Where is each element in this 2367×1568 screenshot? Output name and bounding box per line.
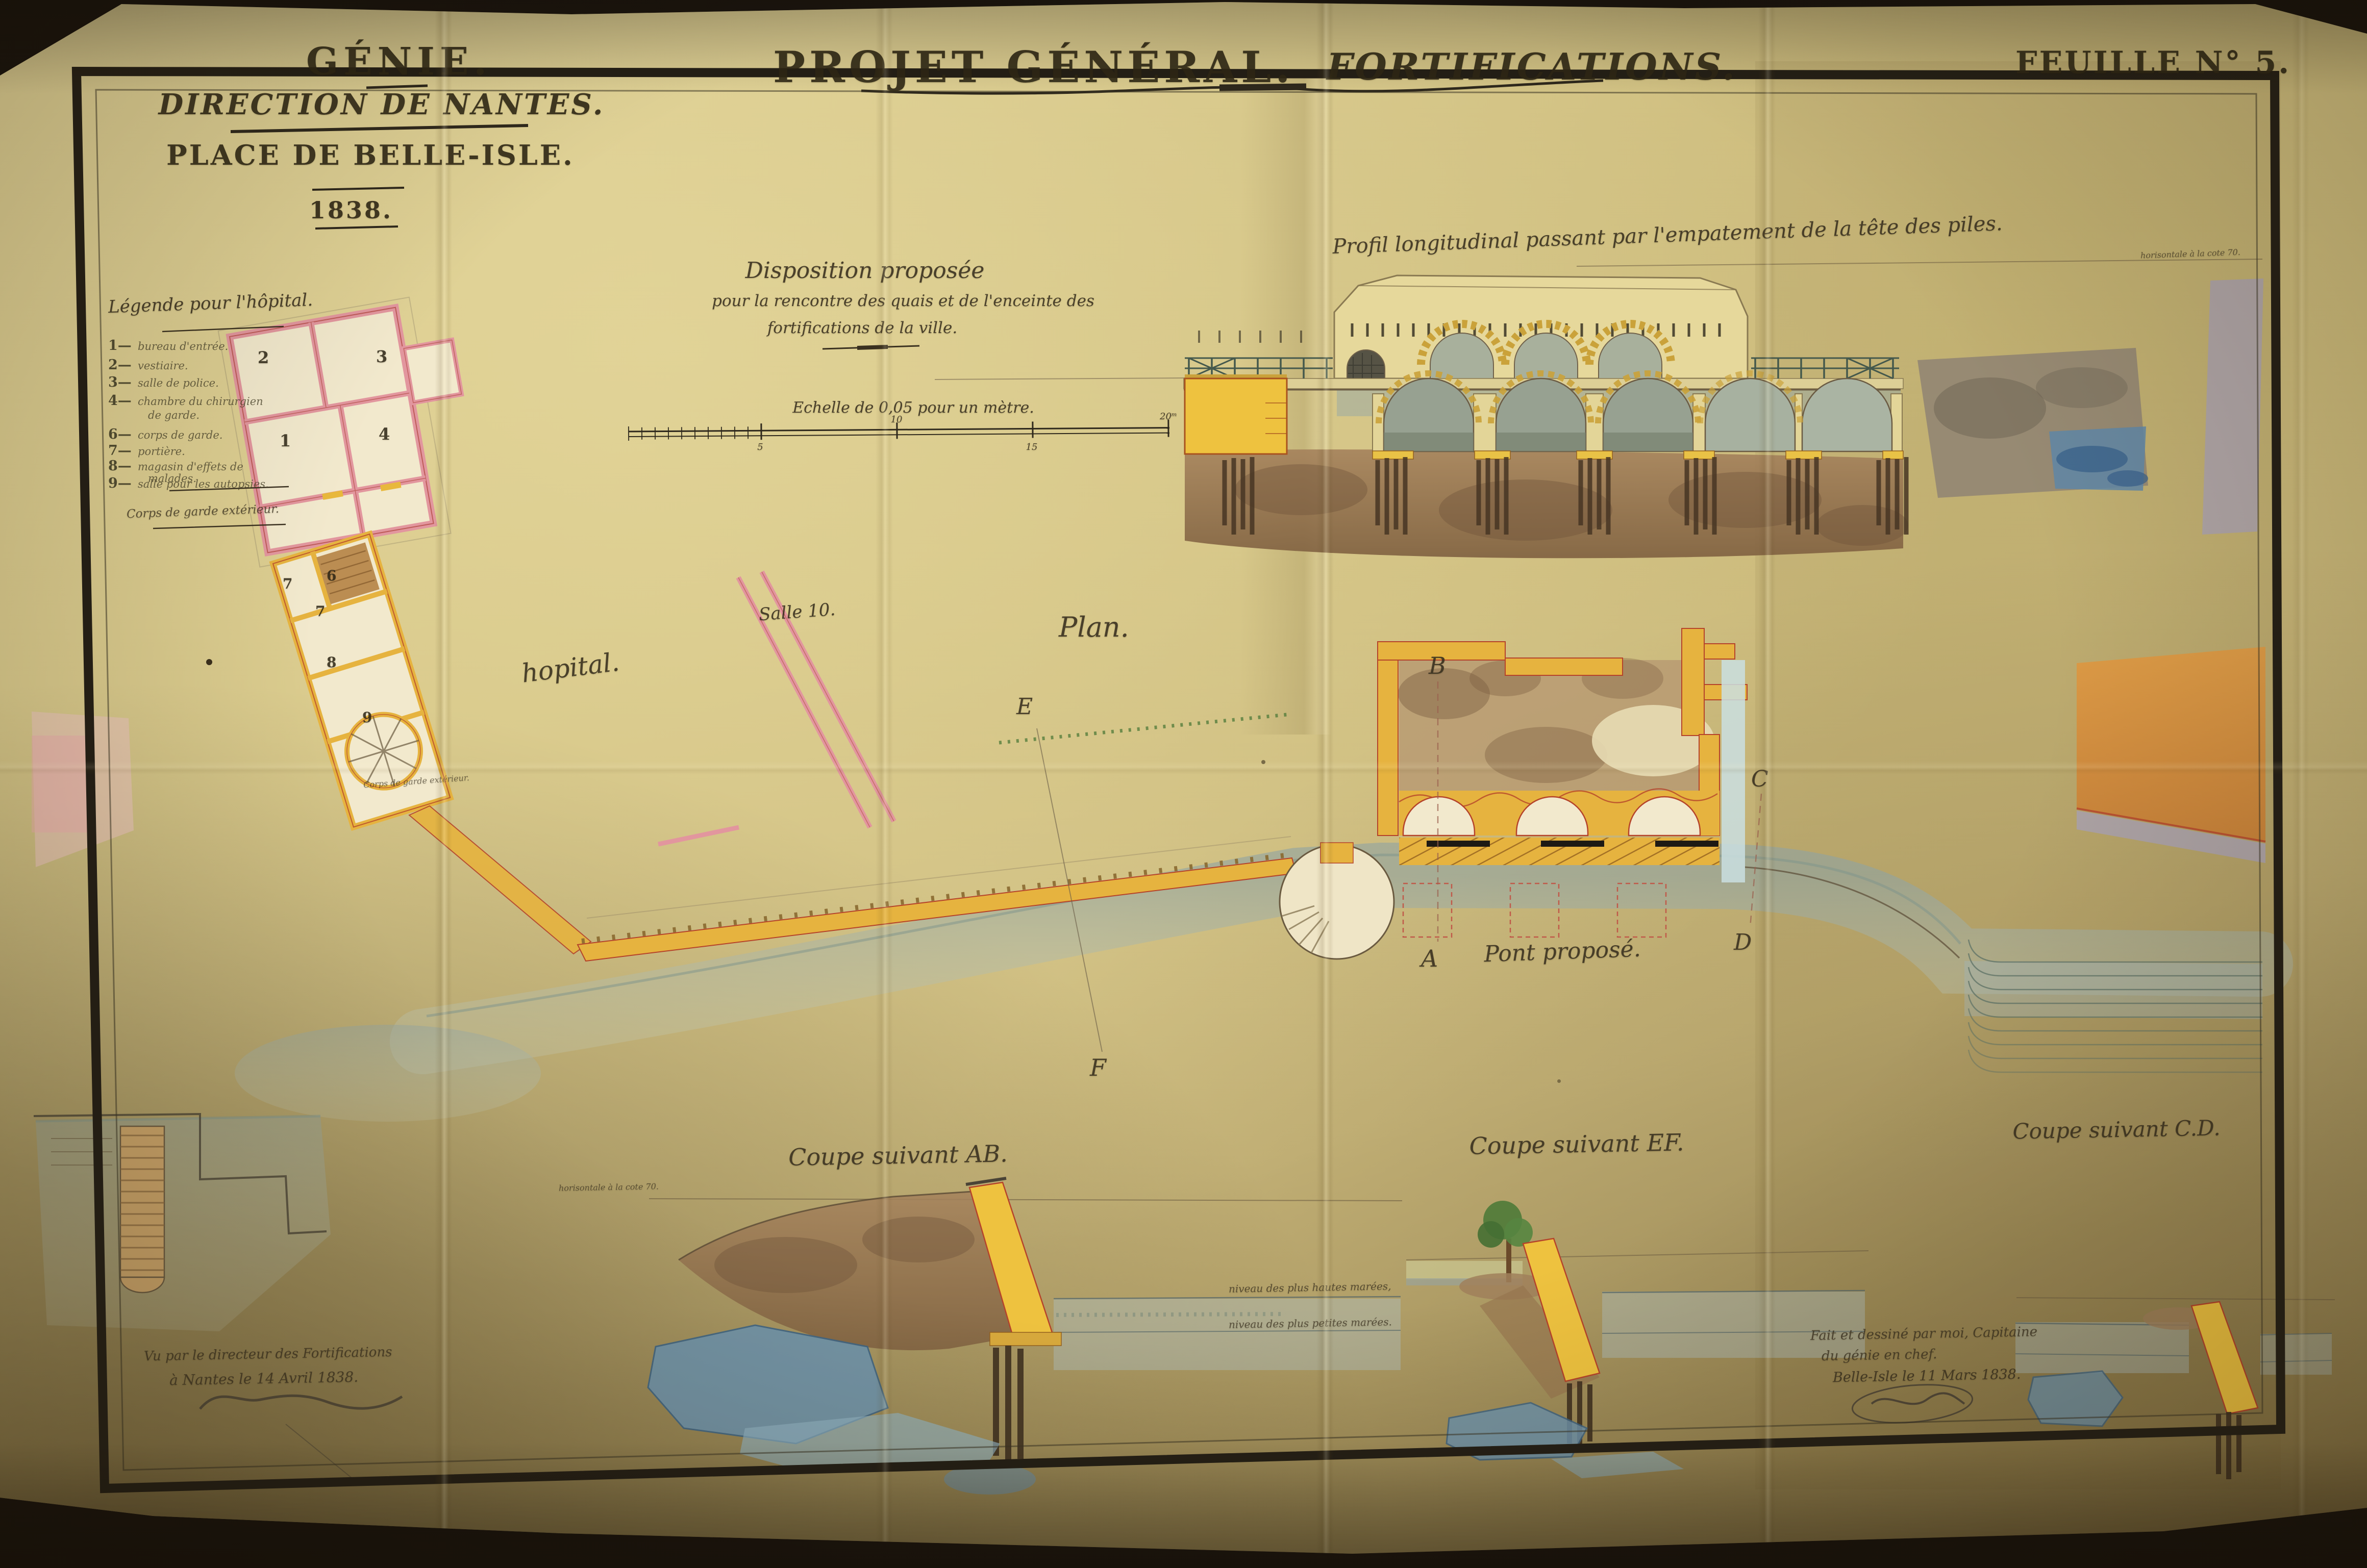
marker-d: D [1734,929,1752,955]
marker-b: B [1429,652,1446,679]
legend-label: bureau d'entrée. [138,340,228,352]
room-number-6: 6 [327,567,336,584]
legend-label: salle de police. [138,377,219,389]
room-number-7b: 7 [315,603,325,620]
legend-item-8: 8—magasin d'effets de [108,458,243,474]
marker-a: A [1421,945,1438,972]
legend-num: 3— [108,374,138,390]
legend-num: 2— [108,357,138,373]
disposition-caption-line3: fortifications de la ville. [767,319,957,337]
legend-item-4b: de garde. [118,409,200,421]
room-number-7a: 7 [283,575,292,592]
corner-title-direction: DIRECTION DE NANTES. [159,88,605,121]
glacis-drawing [2077,647,2265,863]
legend-item-6: 6—corps de garde. [108,426,222,442]
legend-item-3: 3—salle de police. [108,374,219,390]
corner-title-year: 1838. [309,196,393,224]
room-number-1: 1 [280,431,291,450]
pont-propose-label: Pont proposé. [1484,936,1641,968]
plan-caption: Plan. [1059,611,1129,643]
coupe-ab-caption: Coupe suivant AB. [788,1140,1008,1171]
marker-c: C [1751,766,1768,792]
coupe-cd-drawing [2015,1298,2335,1479]
legend-label: chambre du chirurgien [138,395,263,408]
scale-tick-5: 5 [757,442,763,452]
legend-label: salle pour les autopsies. [138,478,269,490]
coupe-ef-drawing [1406,1201,1868,1478]
marker-e: E [1016,694,1033,720]
legend-num: 6— [108,426,138,442]
legend-label: corps de garde. [138,429,222,441]
legend-num: 9— [108,475,138,491]
legend-label: vestiaire. [138,360,188,372]
disposition-caption-line1: Disposition proposée [745,258,985,284]
author-line2: du génie en chef. [1822,1347,1937,1364]
room-number-2: 2 [258,348,269,367]
room-number-9: 9 [362,709,372,726]
quay-steps-drawing [32,712,331,1331]
river-plan-drawing [235,855,2260,1122]
legend-item-7: 7—portière. [108,443,185,459]
author-line3: Belle-Isle le 11 Mars 1838. [1833,1367,2021,1385]
map-sheet: GÉNIE. DIRECTION DE NANTES. PLACE DE BEL… [0,0,2367,1568]
sheet-number: FEUILLE N° 5. [2015,45,2291,81]
main-title-fortifications: FORTIFICATIONS. [1327,45,1737,88]
approval-line2: à Nantes le 14 Avril 1838. [169,1369,359,1388]
legend-item-1: 1—bureau d'entrée. [108,338,228,353]
legend-num: 7— [108,443,138,459]
coupe-cd-caption: Coupe suivant C.D. [2012,1115,2221,1144]
marker-f: F [1090,1054,1106,1081]
corner-title-genie: GÉNIE. [306,40,492,84]
scale-caption: Echelle de 0,05 pour un mètre. [792,399,1034,417]
main-title: PROJET GÉNÉRAL. [773,42,1294,92]
room-number-4: 4 [379,424,390,444]
coupe-ef-caption: Coupe suivant EF. [1469,1128,1684,1159]
legend-item-9: 9—salle pour les autopsies. [108,475,269,491]
room-number-8: 8 [327,654,336,671]
legend-item-4: 4—chambre du chirurgien [108,393,263,409]
corner-title-place: PLACE DE BELLE-ISLE. [166,139,575,171]
scale-tick-10: 10 [891,414,903,425]
legend-num: 8— [108,458,138,474]
legend-num: 1— [108,338,138,353]
scale-tick-15: 15 [1026,442,1038,452]
scale-tick-20: 20ᵐ [1160,411,1177,422]
disposition-caption-line2: pour la rencontre des quais et de l'ence… [712,292,1094,310]
room-number-3: 3 [376,347,387,366]
legend-label: magasin d'effets de [138,461,243,473]
legend-label: portière. [138,445,185,458]
coupe-ab-datum-note: horisontale à la cote 70. [559,1181,659,1193]
legend-num: 4— [108,393,138,409]
photograph-of-plan: GÉNIE. DIRECTION DE NANTES. PLACE DE BEL… [0,0,2367,1568]
legend-label: de garde. [148,409,200,421]
coupe-ab-drawing [648,1178,1402,1495]
bridge-profile-drawing [935,259,2263,558]
signature-right [1851,1380,1974,1427]
legend-item-2: 2—vestiaire. [108,357,188,373]
